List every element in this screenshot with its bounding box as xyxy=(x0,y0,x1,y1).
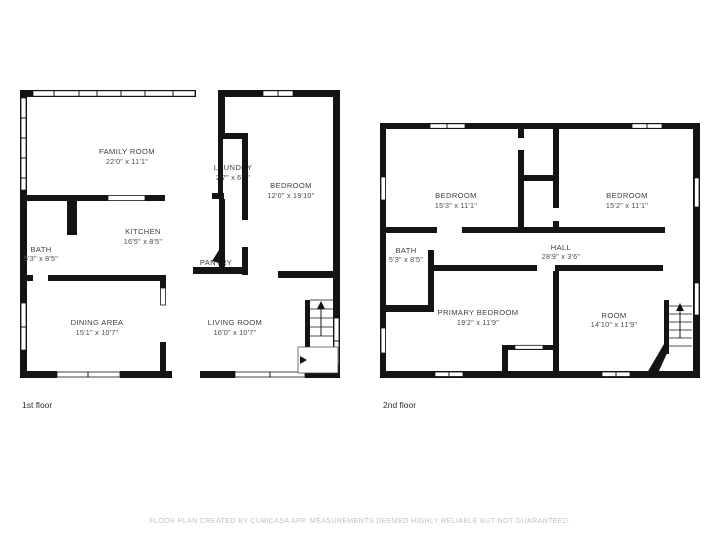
first-floor-caption: 1st floor xyxy=(22,400,52,410)
floor-plan-page: LAUNDRY 2'7" x 6'3" PANTRY 2'6" x 1'6" xyxy=(0,0,720,540)
room-dims-primary-bedroom: 19'2" x 11'9" xyxy=(457,318,499,327)
room-label-living-room: LIVING ROOM xyxy=(208,318,262,327)
room-label-dining-area: DINING AREA xyxy=(71,318,124,327)
room-label-bedroom: BEDROOM xyxy=(270,181,312,190)
room-label-bath: BATH xyxy=(395,246,416,255)
stair-angled-wall xyxy=(647,344,669,373)
second-floor-caption: 2nd floor xyxy=(383,400,416,410)
disclaimer-text: FLOOR PLAN CREATED BY CUBICASA APP. MEAS… xyxy=(149,518,570,525)
room-label-bedroom-right: BEDROOM xyxy=(606,191,648,200)
window xyxy=(695,283,700,315)
first-floor-walls xyxy=(20,90,340,378)
room-dims-dining-area: 15'1" x 10'7" xyxy=(76,328,119,337)
room-label-kitchen: KITCHEN xyxy=(125,227,161,236)
cased-opening xyxy=(108,196,145,201)
window xyxy=(381,328,386,353)
room-dims-family-room: 22'0" x 11'1" xyxy=(106,157,148,166)
room-dims-bedroom-right: 15'2" x 11'1" xyxy=(606,201,648,210)
room-dims-bath: 5'3" x 8'5" xyxy=(24,254,58,263)
first-floor-plan: LAUNDRY 2'7" x 6'3" PANTRY 2'6" x 1'6" xyxy=(20,90,340,410)
room-dims-living-room: 16'0" x 10'7" xyxy=(214,328,257,337)
room-dims-room: 14'10" x 11'9" xyxy=(591,320,638,329)
room-label-primary-bedroom: PRIMARY BEDROOM xyxy=(438,308,519,317)
room-dims-bedroom-left: 15'3" x 11'1" xyxy=(435,201,477,210)
window xyxy=(33,91,195,96)
first-floor-room-labels: FAMILY ROOM 22'0" x 11'1" BEDROOM 12'0" … xyxy=(24,147,315,337)
window xyxy=(21,98,26,190)
window xyxy=(381,177,386,200)
closet-opening xyxy=(515,345,543,349)
second-floor-walls xyxy=(380,123,700,378)
pantry-door-marker xyxy=(212,250,219,263)
room-label-room: ROOM xyxy=(601,311,626,320)
room-dims-bath: 5'3" x 8'5" xyxy=(389,255,423,264)
second-floor-plan: BEDROOM 15'3" x 11'1" BEDROOM 15'2" x 11… xyxy=(380,123,700,410)
first-floor-staircase xyxy=(298,300,338,373)
room-label-bedroom-left: BEDROOM xyxy=(435,191,477,200)
room-dims-hall: 28'9" x 3'6" xyxy=(542,252,581,261)
cased-opening xyxy=(161,288,166,305)
second-floor-staircase xyxy=(669,303,692,346)
room-label-family-room: FAMILY ROOM xyxy=(99,147,155,156)
room-label-hall: HALL xyxy=(551,243,571,252)
floor-plan-drawing: LAUNDRY 2'7" x 6'3" PANTRY 2'6" x 1'6" xyxy=(0,0,720,540)
room-dims-bedroom: 12'0" x 19'10" xyxy=(268,191,315,200)
room-dims-kitchen: 16'5" x 8'5" xyxy=(124,237,163,246)
room-label-bath: BATH xyxy=(30,245,51,254)
window xyxy=(695,178,700,207)
